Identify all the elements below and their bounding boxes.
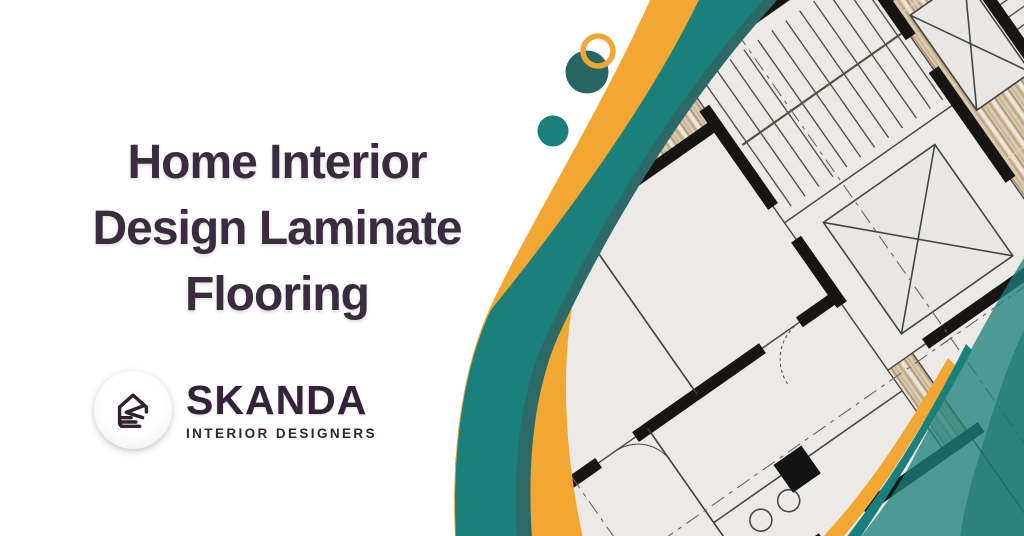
logo-badge	[94, 371, 172, 449]
house-monogram-icon	[110, 387, 156, 433]
brand-name: SKANDA	[186, 379, 377, 421]
brand-tagline: INTERIOR DESIGNERS	[186, 426, 377, 441]
headline: Home Interior Design Laminate Flooring	[27, 130, 527, 328]
headline-line-2: Design Laminate	[27, 196, 527, 262]
teal-circle	[538, 116, 569, 147]
headline-line-3: Flooring	[27, 262, 527, 328]
brand-lockup: SKANDA INTERIOR DESIGNERS	[94, 371, 377, 449]
brand-text: SKANDA INTERIOR DESIGNERS	[186, 379, 377, 441]
headline-line-1: Home Interior	[27, 130, 527, 196]
banner: Home Interior Design Laminate Flooring S…	[0, 0, 1024, 536]
